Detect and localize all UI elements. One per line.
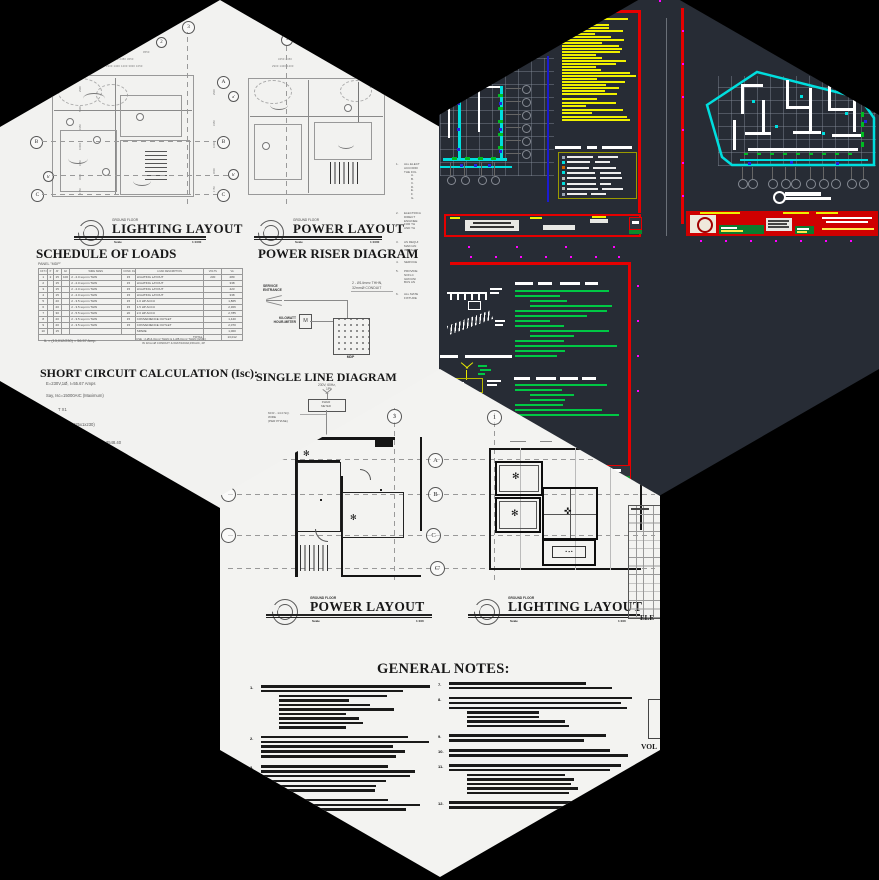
- cad-yellow-text-block: [562, 98, 640, 123]
- legend-symbol-icon: [562, 193, 565, 196]
- side-note-item: 5.PROVIDENON-CGROUNIBUS AN: [396, 270, 418, 285]
- note-block: 9.: [438, 734, 634, 744]
- note-block: 3.: [250, 765, 432, 794]
- north-logo-icon: [474, 599, 500, 625]
- grid-bubble: [806, 179, 816, 189]
- grid-bubble-2: 2: [156, 37, 167, 48]
- grid-bubble-B: B: [428, 487, 443, 502]
- dim-row: 9550: [143, 51, 150, 54]
- feeder-label: 2 - Ø14mm² THHN,: [352, 281, 382, 285]
- short-circuit-heading: SHORT CIRCUIT CALCULATION (Isc):: [40, 366, 258, 381]
- fan-symbol-icon: ✻: [350, 514, 357, 522]
- grid-bubble: [819, 179, 829, 189]
- grid-bubble: [738, 179, 748, 189]
- riser-wire: [284, 300, 348, 301]
- lighting-plan-drawing: [38, 58, 206, 206]
- grid-bubble-a: a': [228, 91, 239, 102]
- grid-bubble-C: C: [426, 528, 441, 543]
- side-note-item: 3.AS REQUIMAIN ANINSTALL: [396, 241, 418, 252]
- clipped-legend-table: [628, 505, 660, 619]
- legend-symbol-icon: [562, 166, 565, 169]
- north-logo-icon: [272, 599, 298, 625]
- structural-plan: [440, 58, 554, 176]
- grid-bubble-b: b': [228, 169, 239, 180]
- general-notes-heading: GENERAL NOTES:: [377, 661, 510, 678]
- fan-symbol-icon: ✻: [512, 472, 520, 481]
- service-entrance-label: SERVICE ENTRANCE: [263, 285, 287, 293]
- legend-symbol-icon: [562, 187, 565, 190]
- grid-bubble-3: 3: [387, 409, 402, 424]
- agency-logo: [690, 215, 716, 233]
- grid-bubble: [781, 179, 791, 189]
- maze-walls: [729, 78, 879, 158]
- grid-bubble: [748, 179, 758, 189]
- general-notes-left-column: 1.2.3.4.: [250, 685, 432, 818]
- cad-green-notes: [515, 290, 625, 360]
- north-logo-icon: [258, 220, 284, 246]
- grid-bubble-C2: C': [430, 561, 445, 576]
- plan-title-lighting: LIGHTING LAYOUT: [508, 599, 642, 615]
- grid-bubble-B: B: [217, 136, 230, 149]
- cad-blue-line: [547, 56, 549, 202]
- ceiling-fixture-box: ✜: [542, 487, 598, 540]
- legend-symbol-icon: [562, 182, 565, 185]
- side-note-item: 2.ELECTRICADIRECTENGINEEFOR THAND TH: [396, 212, 421, 231]
- cad-green-notes: [515, 384, 625, 419]
- grid-bubble-C: C: [217, 189, 230, 202]
- grid-bubble-A: A: [217, 76, 230, 89]
- legend-symbol-icon: [562, 171, 565, 174]
- side-note-item: 4.SERVICE: [396, 261, 417, 265]
- fan-symbol-icon: ✻: [303, 450, 310, 458]
- note-block: 1.: [250, 685, 432, 731]
- hexagon-collage: 9550 3450 2450 3650 2900 1400 1200 3000 …: [0, 0, 879, 880]
- fan-symbol-icon: ✻: [511, 509, 519, 518]
- grid-bubble-3: 3: [182, 21, 195, 34]
- riser-heading: POWER RISER DIAGRAM: [258, 246, 418, 262]
- note-block: 10.: [438, 749, 634, 759]
- north-logo-icon: [78, 220, 104, 246]
- schedule-heading: SCHEDULE OF LOADS: [36, 246, 176, 262]
- note-block: 12.: [438, 801, 634, 811]
- panel-label: PANEL "MDP": [38, 262, 61, 266]
- ceiling-fixture-box: ✻: [495, 497, 541, 533]
- voltage-partial-label: VOL: [641, 742, 657, 751]
- ceiling-fixture-box: ✻: [495, 461, 543, 496]
- legend-partial-label: ELE: [640, 614, 654, 622]
- plan-title-lighting: LIGHTING LAYOUT: [112, 221, 243, 237]
- side-note-item: 6.ALL MATEFIXTURE: [396, 293, 418, 301]
- grid-bubble: [859, 179, 869, 189]
- grid-bubble-1: 1: [281, 34, 293, 46]
- titleblock-left-sheet: [444, 214, 641, 237]
- grid-bubble-1: 1: [487, 410, 502, 425]
- plan-title-power: POWER LAYOUT: [310, 599, 425, 615]
- note-block: 7.: [438, 682, 634, 692]
- cad-legend-box: [558, 152, 637, 199]
- grid-bubble: [791, 179, 801, 189]
- general-notes-right-column: 7.8.9.10.11.12.: [438, 682, 634, 816]
- grid-bubble: [831, 179, 841, 189]
- mdp-panel-box: [333, 318, 370, 355]
- note-block: 11.: [438, 764, 634, 796]
- mdp-label: MDP: [333, 355, 368, 359]
- grid-bubble-A: A: [428, 453, 443, 468]
- note-block: 4.: [250, 799, 432, 814]
- legend-symbol-icon: [562, 156, 565, 159]
- detail-sketch-hatchbar: [447, 310, 493, 334]
- fixture-box: • ▪ •: [542, 539, 596, 566]
- chandelier-symbol-icon: ✜: [564, 507, 572, 516]
- legend-symbol-icon: [562, 161, 565, 164]
- stamp: [629, 217, 642, 230]
- grid-bubble: [768, 179, 778, 189]
- note-block: 2.: [250, 736, 432, 760]
- plan-title-power: POWER LAYOUT: [293, 221, 405, 237]
- detail-sketch-comb: [447, 288, 507, 312]
- schedule-table: CKT NO.PATAFWIRE SIZESCOND. DIA.LOAD DES…: [38, 268, 243, 341]
- schedule-of-loads-table: CKT NO.PATAFWIRE SIZESCOND. DIA.LOAD DES…: [38, 268, 243, 341]
- power-plan-drawing: [240, 62, 402, 202]
- titleblock-right-sheet: [686, 211, 878, 236]
- note-block: 8.: [438, 697, 634, 730]
- side-note-item: 1.ALL ELECTACCORDITHE FOLA.B.C.D.E.F.G.: [396, 163, 420, 201]
- load-formula: IL = (13,012/230) = 56.57 Amp.: [44, 339, 96, 343]
- cad-yellow-text-block: [562, 18, 639, 96]
- grid-bubble: [847, 179, 857, 189]
- legend-symbol-icon: [562, 177, 565, 180]
